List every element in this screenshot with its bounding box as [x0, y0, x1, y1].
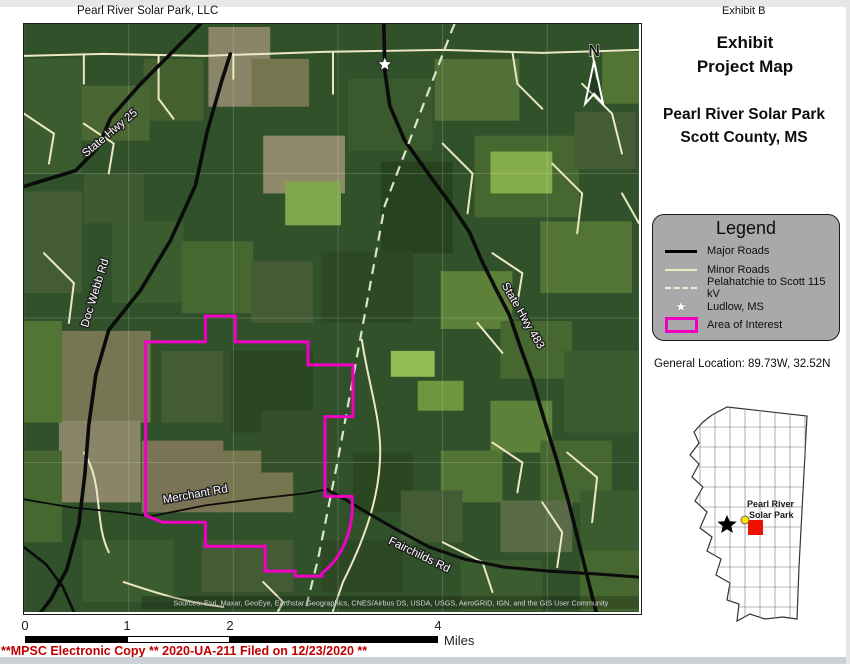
legend-item-transmission: Pelahatchie to Scott 115 kV — [653, 279, 839, 298]
legend-box: Legend Major Roads Minor Roads Pelahatch… — [652, 214, 840, 341]
map-svg: State Hwy 25 Doc Webb Rd State Hwy 483 M… — [24, 24, 639, 612]
map-title: Pearl River Solar Park, LLC — [77, 5, 218, 17]
star-icon: ★ — [663, 300, 699, 313]
legend-item-ludlow: ★ Ludlow, MS — [653, 298, 839, 317]
minor-roads-line-icon — [663, 269, 699, 271]
scale-tick-1: 1 — [123, 618, 130, 633]
legend-item-major-roads: Major Roads — [653, 242, 839, 261]
dashed-line-icon — [663, 287, 699, 289]
legend-title: Legend — [653, 218, 839, 239]
map-canvas: State Hwy 25 Doc Webb Rd State Hwy 483 M… — [23, 23, 642, 615]
scale-unit: Miles — [444, 633, 474, 648]
panel-heading: Exhibit Project Map — [648, 31, 842, 79]
scale-bar-segment-3 — [230, 636, 438, 643]
legend-item-aoi: Area of Interest — [653, 316, 839, 335]
panel-subtitle-line2: Scott County, MS — [644, 126, 844, 149]
aoi-rectangle-icon — [663, 317, 699, 333]
state-inset-map: Pearl River Solar Park — [676, 385, 842, 635]
scale-tick-0: 0 — [21, 618, 28, 633]
filing-stamp: **MPSC Electronic Copy ** 2020-UA-211 Fi… — [1, 644, 367, 658]
panel-title-line1: Exhibit — [648, 31, 842, 55]
panel-title-line2: Project Map — [648, 55, 842, 79]
exhibit-sheet: Pearl River Solar Park, LLC Exhibit B — [0, 7, 846, 657]
legend-item-label: Major Roads — [707, 245, 769, 257]
inset-svg: Pearl River Solar Park — [676, 385, 842, 630]
inset-label-line2: Solar Park — [749, 510, 795, 520]
panel-subtitle: Pearl River Solar Park Scott County, MS — [644, 103, 844, 149]
legend-item-label: Ludlow, MS — [707, 301, 764, 313]
scale-tick-2: 2 — [226, 618, 233, 633]
legend-item-label: Area of Interest — [707, 319, 782, 331]
inset-label-line1: Pearl River — [747, 499, 795, 509]
scott-county-highlight — [748, 520, 763, 535]
scale-bar-segment-1 — [25, 636, 127, 643]
legend-item-label: Pelahatchie to Scott 115 kV — [707, 276, 839, 300]
north-label: N — [588, 43, 600, 60]
site-dot-icon — [741, 516, 749, 524]
panel-subtitle-line1: Pearl River Solar Park — [644, 103, 844, 126]
major-roads-line-icon — [663, 250, 699, 253]
general-location: General Location: 89.73W, 32.52N — [654, 358, 830, 370]
scale-bar-segment-2 — [127, 636, 230, 643]
legend-item-label: Minor Roads — [707, 264, 769, 276]
exhibit-tag: Exhibit B — [722, 5, 765, 17]
map-attribution: Sources: Esri, Maxar, GeoEye, Earthstar … — [173, 599, 608, 608]
scale-tick-4: 4 — [434, 618, 441, 633]
